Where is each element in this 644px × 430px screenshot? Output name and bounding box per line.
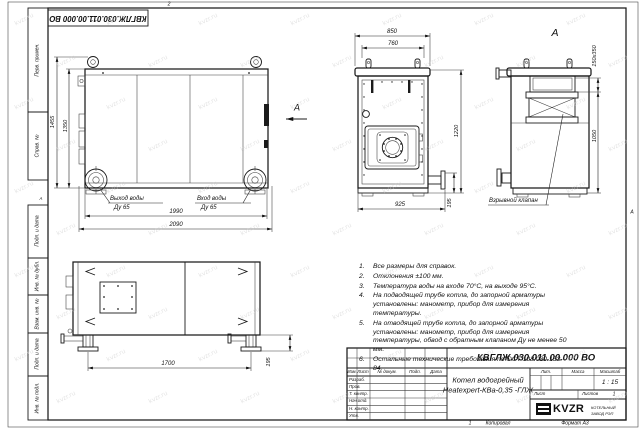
hatch-bolts <box>103 285 133 310</box>
masshtab-label: Масштаб <box>600 370 621 374</box>
footer-format: Формат А3 <box>561 422 588 427</box>
lit-label: Лит. <box>541 370 551 374</box>
scale-value: 1 : 15 <box>602 380 618 387</box>
row-prov: Пров. <box>349 385 361 389</box>
company-line1: КОТЕЛЬНЫЙ <box>591 405 616 410</box>
row-nachotd: Нач.отд. <box>349 399 368 403</box>
sidebar-label-podp-data-2: Подп. и дата <box>36 338 41 369</box>
dim-plan-leg-height: 195 <box>267 357 273 366</box>
row-utv: Утв. <box>349 414 359 418</box>
burner-door <box>365 126 423 169</box>
dim-rear-height: 1050 <box>593 130 599 142</box>
note-text: Температура воды на входе 70°С, на выход… <box>373 283 571 292</box>
outlet-dn-label: Ду 65 <box>114 205 130 211</box>
product-name-line2: Heatexpert-КВа-0,35 -ГЛЖ <box>443 386 533 394</box>
note-item: 1.Все размеры для справок. <box>357 263 571 272</box>
dim-side-height-overall: 1455 <box>51 116 57 128</box>
dim-front-width-base: 925 <box>395 202 405 208</box>
note-text: Все размеры для справок. <box>373 263 571 272</box>
zone-mark-right: А <box>630 211 633 216</box>
sidebar-label-inv-dubl: Инв. № дубл. <box>36 261 41 292</box>
view-rear-linework <box>488 59 601 205</box>
row-nkontr: Н. контр. <box>349 407 369 411</box>
list-label: Лист <box>534 392 545 396</box>
note-text: Отклонения ±100 мм. <box>373 273 571 282</box>
kvzr-logo-icon <box>536 403 551 415</box>
note-text: На подводящей трубе котла, до запорной а… <box>373 292 571 318</box>
dim-plan-legs-span: 1700 <box>161 361 174 367</box>
note-number: 5. <box>357 320 373 355</box>
note-number: 1. <box>357 263 373 272</box>
sidebar-label-podp-data-1: Подп. и дата <box>36 215 41 246</box>
view-plan-linework <box>61 262 293 371</box>
view-a-arrow-label: А <box>294 104 300 113</box>
listov-label: Листов <box>582 392 598 396</box>
note-number: 2. <box>357 273 373 282</box>
col-doc: № докум. <box>377 370 396 374</box>
dim-rear-flue: 150х350 <box>593 45 599 66</box>
note-item: 2.Отклонения ±100 мм. <box>357 273 571 282</box>
inlet-label: Вход воды <box>197 196 226 202</box>
rear-view-title: А <box>551 28 558 39</box>
top-stamp-doc-number: КВГЛЖ.030.011.00.000 ВО <box>49 14 146 22</box>
massa-label: Масса <box>572 370 585 374</box>
company-line2: ЗАВОД РЭП <box>591 411 613 416</box>
inlet-dn-label: Ду 65 <box>201 205 217 211</box>
panel-bolts <box>363 81 422 175</box>
explosion-valve <box>526 92 578 123</box>
note-item: 3.Температура воды на входе 70°С, на вых… <box>357 283 571 292</box>
sidebar-label-vzam-inv: Взам. инв. № <box>36 299 41 330</box>
sidebar-label-perv-primen: Перв. примен. <box>36 43 41 76</box>
dim-side-length-body: 1990 <box>169 209 182 215</box>
note-number: 3. <box>357 283 373 292</box>
dim-side-height-body: 1350 <box>64 120 70 132</box>
col-izm: Изм. <box>347 370 356 374</box>
note-item: 5.На отводящей трубе котла, до запорной … <box>357 320 571 355</box>
explosion-valve-label: Взрывной клапан <box>489 198 538 204</box>
dim-side-length-overall: 2090 <box>169 222 182 228</box>
col-podp: Подп. <box>409 370 421 374</box>
sidebar-label-sprav-no: Справ. № <box>36 135 41 158</box>
product-name-line1: Котел водогрейный <box>452 376 523 384</box>
note-number: 4. <box>357 292 373 318</box>
zone-mark-left: А <box>40 197 43 201</box>
title-doc-number: КВГЛЖ.030.011.00.000 ВО <box>477 353 595 363</box>
row-razrab: Разраб. <box>349 378 365 382</box>
dim-front-flange-height: 195 <box>448 198 454 207</box>
kvzr-logo-text: KVZR <box>553 403 584 415</box>
dim-front-width-overall: 850 <box>387 29 397 35</box>
dim-front-width-top: 760 <box>388 41 398 47</box>
note-text: На отводящей трубе котла, до запорной ар… <box>373 320 571 355</box>
view-front-linework <box>355 33 464 212</box>
footer-kopiroval: Копировал <box>486 422 511 427</box>
view-side-linework <box>54 57 307 233</box>
listov-value: 1 <box>613 392 616 397</box>
outlet-label: Выход воды <box>110 196 144 202</box>
dim-front-height: 1220 <box>455 125 461 137</box>
zone-mark-top: 2 <box>168 3 171 8</box>
col-list: Лист <box>357 370 368 374</box>
col-data: Дата <box>430 370 442 374</box>
sidebar-label-inv-podl: Инв. № подл. <box>36 382 41 413</box>
row-tkontr: Т. контр. <box>349 392 368 396</box>
note-item: 4.На подводящей трубе котла, до запорной… <box>357 292 571 318</box>
drawing-sheet: КВГЛЖ.030.011.00.000 ВО Перв. примен. Сп… <box>0 0 644 430</box>
zone-mark-bottom: 1 <box>469 422 472 427</box>
